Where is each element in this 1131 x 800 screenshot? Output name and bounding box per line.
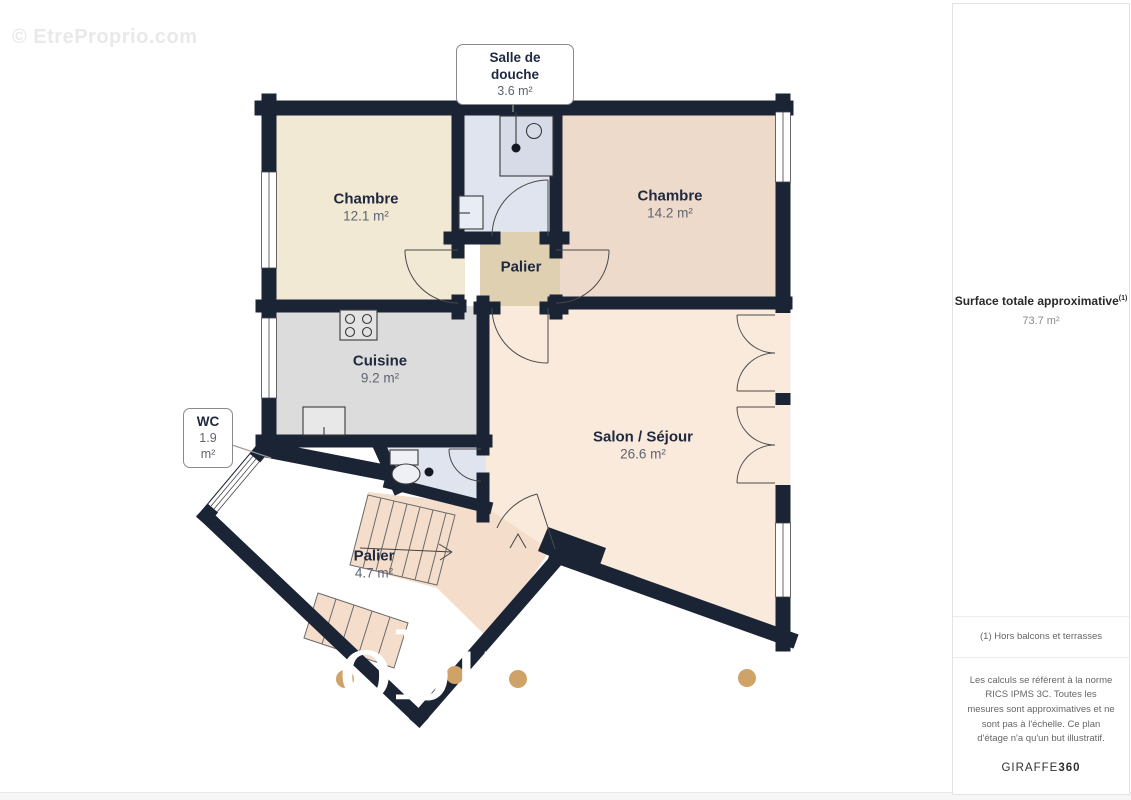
watermark-dot xyxy=(336,670,354,688)
callout-wc: WC 1.9 m² xyxy=(183,408,233,468)
stove-icon xyxy=(340,310,377,340)
disclaimer-text: Les calculs se réfèrent à la norme RICS … xyxy=(966,674,1116,748)
surface-total-label: Surface totale approximative(1) xyxy=(955,294,1128,308)
callout-area: 3.6 m² xyxy=(469,84,561,100)
surface-label-text: Surface totale approximative xyxy=(955,294,1119,308)
shower-icon xyxy=(500,112,553,176)
floor-chambre-2 xyxy=(553,108,786,303)
callout-name: Salle de douche xyxy=(469,50,561,84)
brand-name: GIRAFFE xyxy=(1001,762,1058,774)
sink-icon xyxy=(303,407,345,435)
floor-plan-page: © EtreProprio.com xyxy=(0,0,1131,800)
surface-footnote-marker: (1) xyxy=(1119,295,1128,302)
surface-total-value: 73.7 m² xyxy=(1022,315,1059,327)
watermark-dot xyxy=(446,666,464,684)
floor-chambre-1 xyxy=(262,108,465,306)
doorway-french-1 xyxy=(776,313,791,393)
doorway-french-2 xyxy=(776,405,791,485)
sidebar-footnote: (1) Hors balcons et terrasses xyxy=(953,617,1129,658)
watermark-dot xyxy=(738,669,756,687)
window-icon xyxy=(262,318,277,398)
callout-salle-de-douche: Salle de douche 3.6 m² xyxy=(456,44,574,105)
window-icon xyxy=(776,112,791,182)
sidebar-surface-section: Surface totale approximative(1) 73.7 m² xyxy=(953,4,1129,617)
callout-area: 1.9 m² xyxy=(194,431,222,462)
brand-suffix: 360 xyxy=(1058,762,1080,774)
callout-name: WC xyxy=(194,414,222,431)
floor-plan-drawing xyxy=(0,0,950,800)
window-icon xyxy=(262,172,277,268)
window-icon xyxy=(776,523,791,597)
info-sidebar: Surface totale approximative(1) 73.7 m² … xyxy=(952,3,1130,795)
washbasin-icon xyxy=(459,196,483,229)
sidebar-disclaimer-section: Les calculs se réfèrent à la norme RICS … xyxy=(953,658,1129,794)
giraffe360-logo: GIRAFFE360 xyxy=(966,760,1116,778)
watermark-dot xyxy=(509,670,527,688)
